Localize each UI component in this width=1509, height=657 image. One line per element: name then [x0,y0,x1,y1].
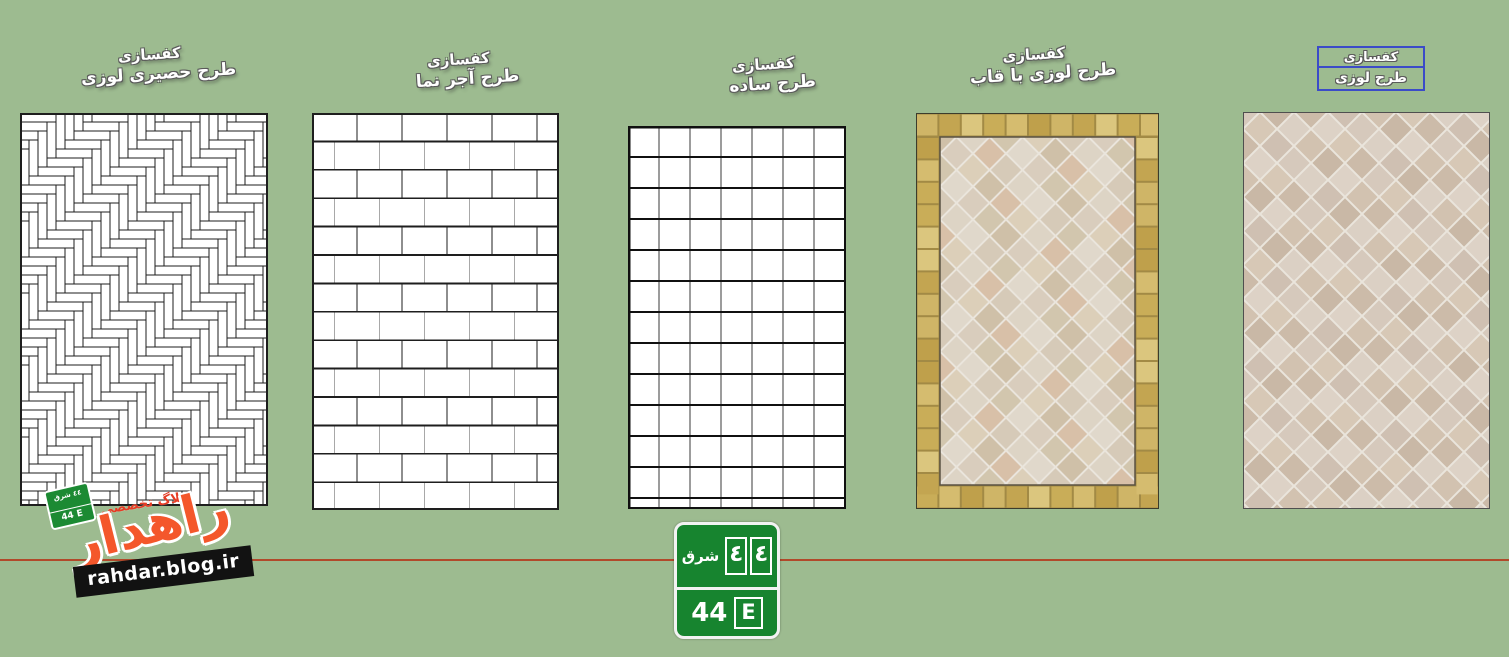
brick-pattern [312,113,559,510]
panel-diamond[interactable] [1243,112,1490,509]
label-line2: طرح لوزی [1319,68,1423,89]
road-sign-number: 44 [691,598,727,628]
grid-pattern [628,126,846,509]
herringbone-pattern [20,113,268,506]
panel-brick-bond[interactable] [312,113,559,510]
label-line1: کفسازی [1319,48,1423,68]
road-sign-top-row: شرق ٤ ٤ [677,525,777,590]
road-sign-44e[interactable]: شرق ٤ ٤ 44 E [674,522,780,639]
panel-herringbone-parquet[interactable] [20,113,268,506]
panel-simple-grid[interactable] [628,126,846,509]
label-simple[interactable]: کفسازی طرح ساده [697,51,847,100]
panel-diamond-with-frame[interactable] [916,113,1159,509]
sketchup-viewport: کفسازی طرح حصیری لوزی کفسازی طرح آجر نما… [0,0,1509,657]
road-sign-letter-box: E [734,597,762,629]
label-herringbone[interactable]: کفسازی طرح حصیری لوزی [71,40,245,90]
label-diamond-selected[interactable]: کفسازی طرح لوزی [1317,46,1425,91]
label-diamond-frame[interactable]: کفسازی طرح لوزی با قاب [944,39,1141,91]
diamond-texture [1243,112,1490,509]
label-brick[interactable]: کفسازی طرح آجر نما [385,45,549,95]
framed-diamond-texture [916,113,1159,509]
road-sign-bottom-row: 44 E [677,590,777,636]
road-sign-direction-word: شرق [682,547,720,565]
road-sign-digit-box: ٤ [750,537,772,575]
road-sign-digit-box: ٤ [725,537,747,575]
